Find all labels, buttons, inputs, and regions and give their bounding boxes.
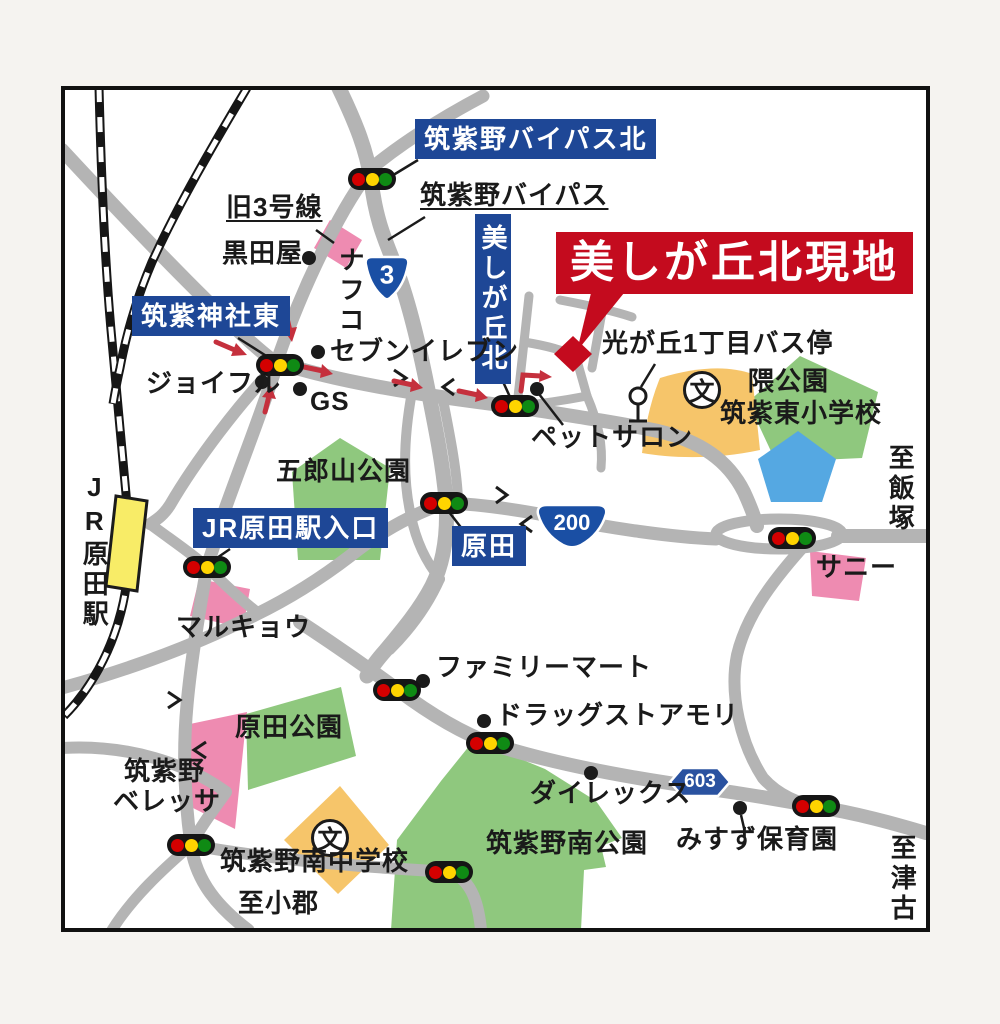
access-map: 文 文 筑紫野バイパス北 筑紫神社東 美しが丘北 JR原田駅入口 原田 美しが丘… xyxy=(0,0,1000,1024)
traffic-light-icon xyxy=(167,834,215,856)
traffic-light-icon xyxy=(373,679,421,701)
label-joyful: ジョイフル xyxy=(146,370,281,397)
label-misuzu-nursery: みすず保育園 xyxy=(676,826,838,853)
traffic-light-icon xyxy=(420,492,468,514)
traffic-light-icon xyxy=(792,795,840,817)
label-bus-stop: 光が丘1丁目バス停 xyxy=(602,330,833,357)
label-nafco: ナフコ xyxy=(336,246,363,336)
label-family-mart: ファミリーマート xyxy=(436,654,652,681)
label-to-iizuka: 至飯塚 xyxy=(886,444,913,534)
label-bypass-north: 筑紫野バイパス北 xyxy=(415,119,656,159)
label-jr-harada-station: JR原田駅 xyxy=(80,472,107,630)
label-kurodaya: 黒田屋 xyxy=(222,240,303,267)
label-jinja-east: 筑紫神社東 xyxy=(132,296,290,336)
route-3-number: 3 xyxy=(380,260,394,291)
label-direx: ダイレックス xyxy=(530,780,691,807)
traffic-light-icon xyxy=(768,527,816,549)
school-symbol-text: 文 xyxy=(689,372,714,408)
label-jr-harada-entrance: JR原田駅入口 xyxy=(193,508,388,548)
label-seven-eleven: セブンイレブン xyxy=(330,338,519,365)
label-kuma-park: 隈公園 xyxy=(748,368,829,395)
traffic-light-icon xyxy=(491,395,539,417)
traffic-light-icon xyxy=(348,168,396,190)
label-pet-salon: ペットサロン xyxy=(531,424,693,451)
label-to-ogori: 至小郡 xyxy=(238,890,319,917)
label-harada: 原田 xyxy=(452,526,526,566)
label-sunny: サニー xyxy=(816,554,897,581)
label-minami-park: 筑紫野南公園 xyxy=(486,830,648,857)
label-to-tsuko: 至津古 xyxy=(888,834,915,924)
route-603-number: 603 xyxy=(684,771,716,793)
traffic-light-icon xyxy=(425,861,473,883)
label-old-route3: 旧3号線 xyxy=(226,194,322,221)
label-gorouyama-park: 五郎山公園 xyxy=(276,458,411,485)
label-bypass-road: 筑紫野バイパス xyxy=(420,182,608,209)
traffic-light-icon xyxy=(466,732,514,754)
school-icon: 文 xyxy=(683,371,721,409)
label-chikushi-higashi-es: 筑紫東小学校 xyxy=(720,400,882,427)
label-veressa-line2: ベレッサ xyxy=(113,788,221,815)
label-minami-jhs: 筑紫野南中学校 xyxy=(220,848,409,875)
label-harada-park: 原田公園 xyxy=(235,714,343,741)
label-drug-store-mori: ドラッグストアモリ xyxy=(496,702,739,729)
site-title-box: 美しが丘北現地 xyxy=(556,232,913,294)
traffic-light-icon xyxy=(183,556,231,578)
label-marukyo: マルキョウ xyxy=(176,614,311,641)
route-200-number: 200 xyxy=(554,510,591,536)
label-veressa-line1: 筑紫野 xyxy=(124,758,205,785)
label-gas-station: GS xyxy=(310,388,350,415)
